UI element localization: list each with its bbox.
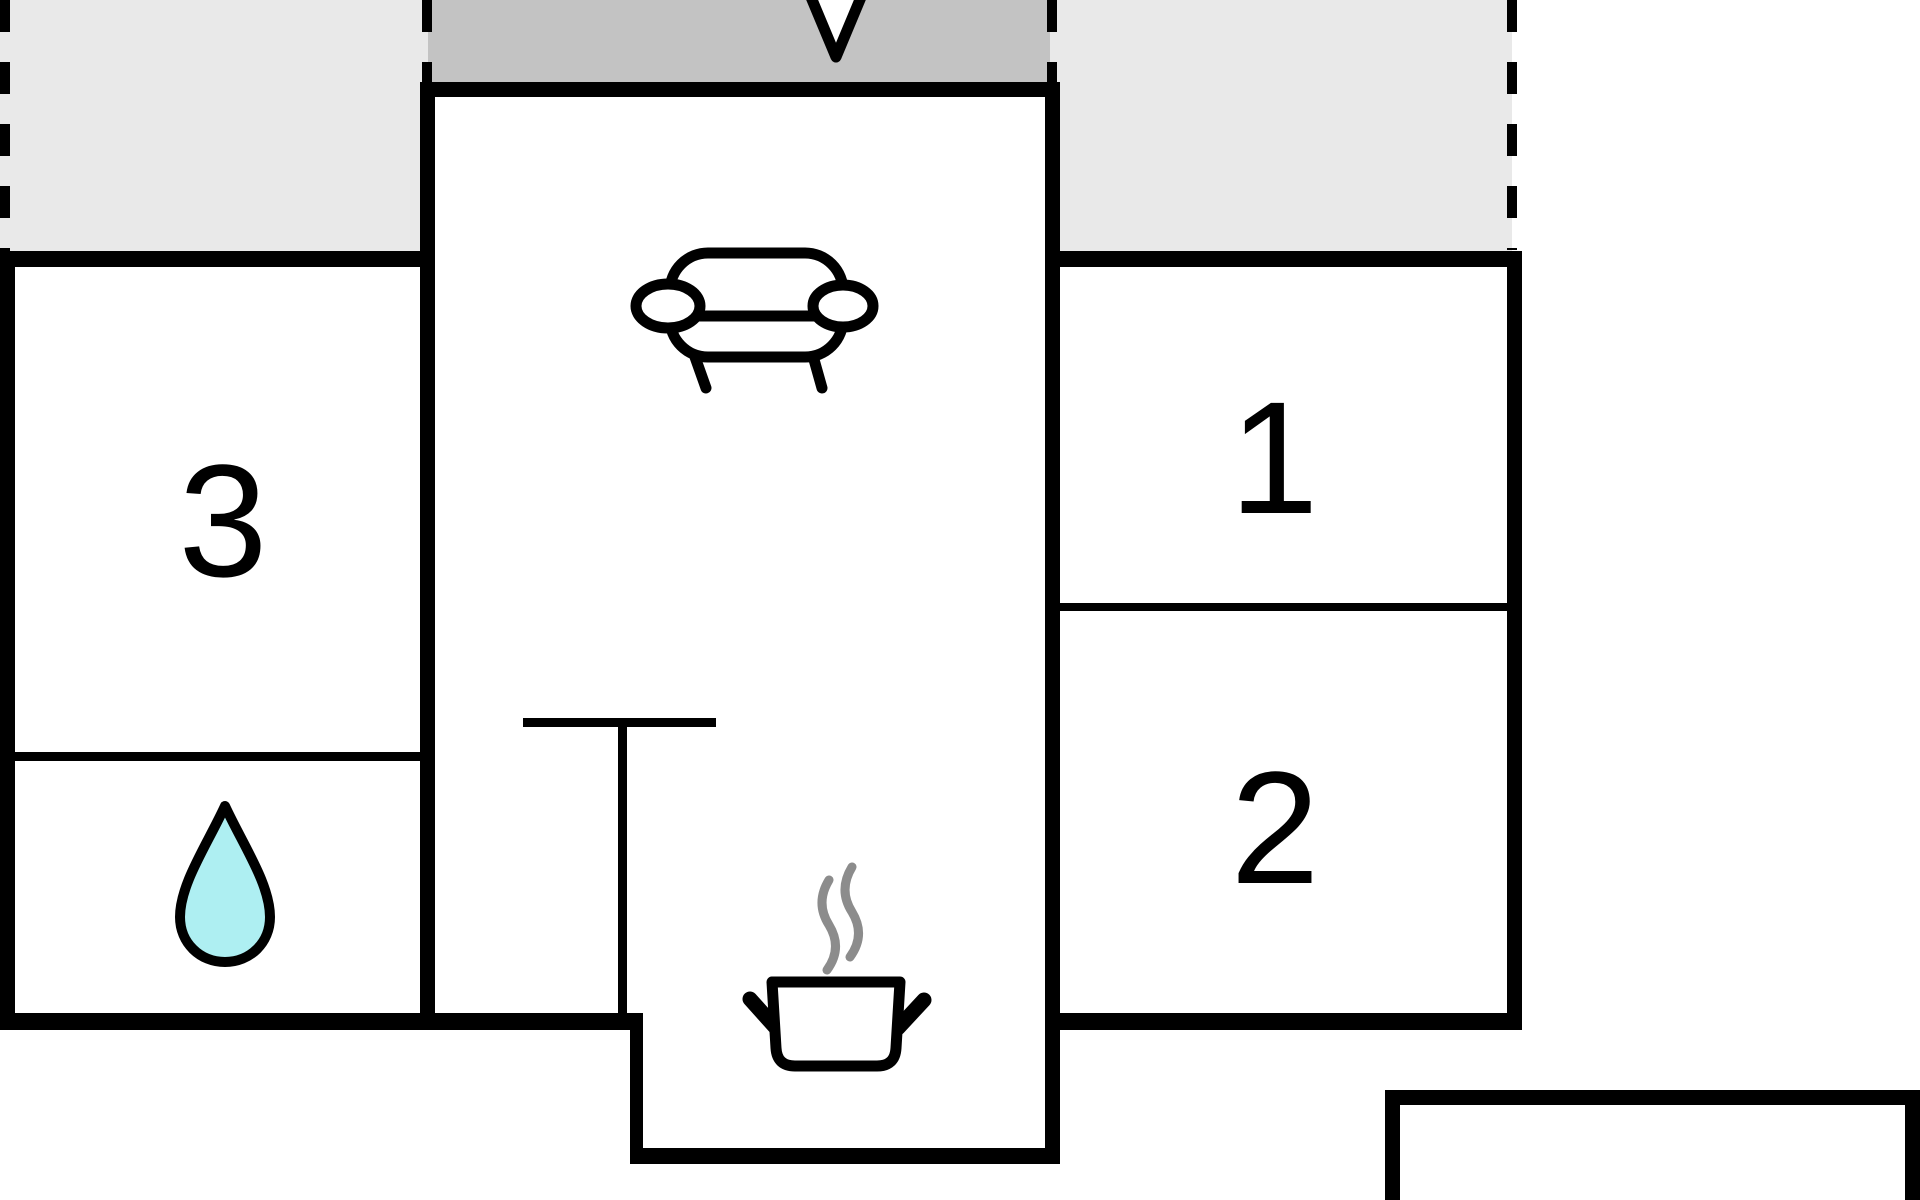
partition-room1-room2 xyxy=(1058,603,1507,611)
wall-living-top xyxy=(420,82,1060,97)
partition-kitchen-horizontal xyxy=(523,718,716,727)
sofa-left-armrest xyxy=(636,284,700,328)
pot-body xyxy=(772,982,900,1066)
right-terrace-area xyxy=(1050,0,1512,251)
wall-annex-left xyxy=(1385,1090,1400,1200)
floor-plan-svg xyxy=(0,0,1920,1200)
wall-room3-top xyxy=(0,251,435,267)
partition-room3-bathroom xyxy=(15,752,428,761)
partition-kitchen-vertical xyxy=(618,727,627,1013)
wall-kitchen-nook-bottom xyxy=(630,1148,1060,1164)
wall-annex-top xyxy=(1385,1090,1920,1105)
wall-bottom-right xyxy=(1045,1013,1522,1030)
wall-rooms12-top xyxy=(1045,251,1522,267)
wall-living-right xyxy=(1045,82,1060,1163)
wall-bottom-left xyxy=(0,1013,643,1030)
floor-plan: 3 1 2 xyxy=(0,0,1920,1200)
entrance-porch-area xyxy=(428,0,1050,82)
room-1-label: 1 xyxy=(1230,378,1319,538)
left-terrace-area xyxy=(0,0,430,253)
room-3-label: 3 xyxy=(179,441,268,601)
cooking-pot-icon xyxy=(750,982,924,1066)
wall-right-outer xyxy=(1507,251,1522,1030)
wall-left-outer xyxy=(0,251,15,1030)
wall-kitchen-nook-left xyxy=(630,1013,643,1163)
wall-living-left xyxy=(420,82,435,1030)
sofa-right-armrest xyxy=(813,285,873,327)
room-2-label: 2 xyxy=(1231,748,1320,908)
wall-annex-right xyxy=(1905,1090,1920,1200)
